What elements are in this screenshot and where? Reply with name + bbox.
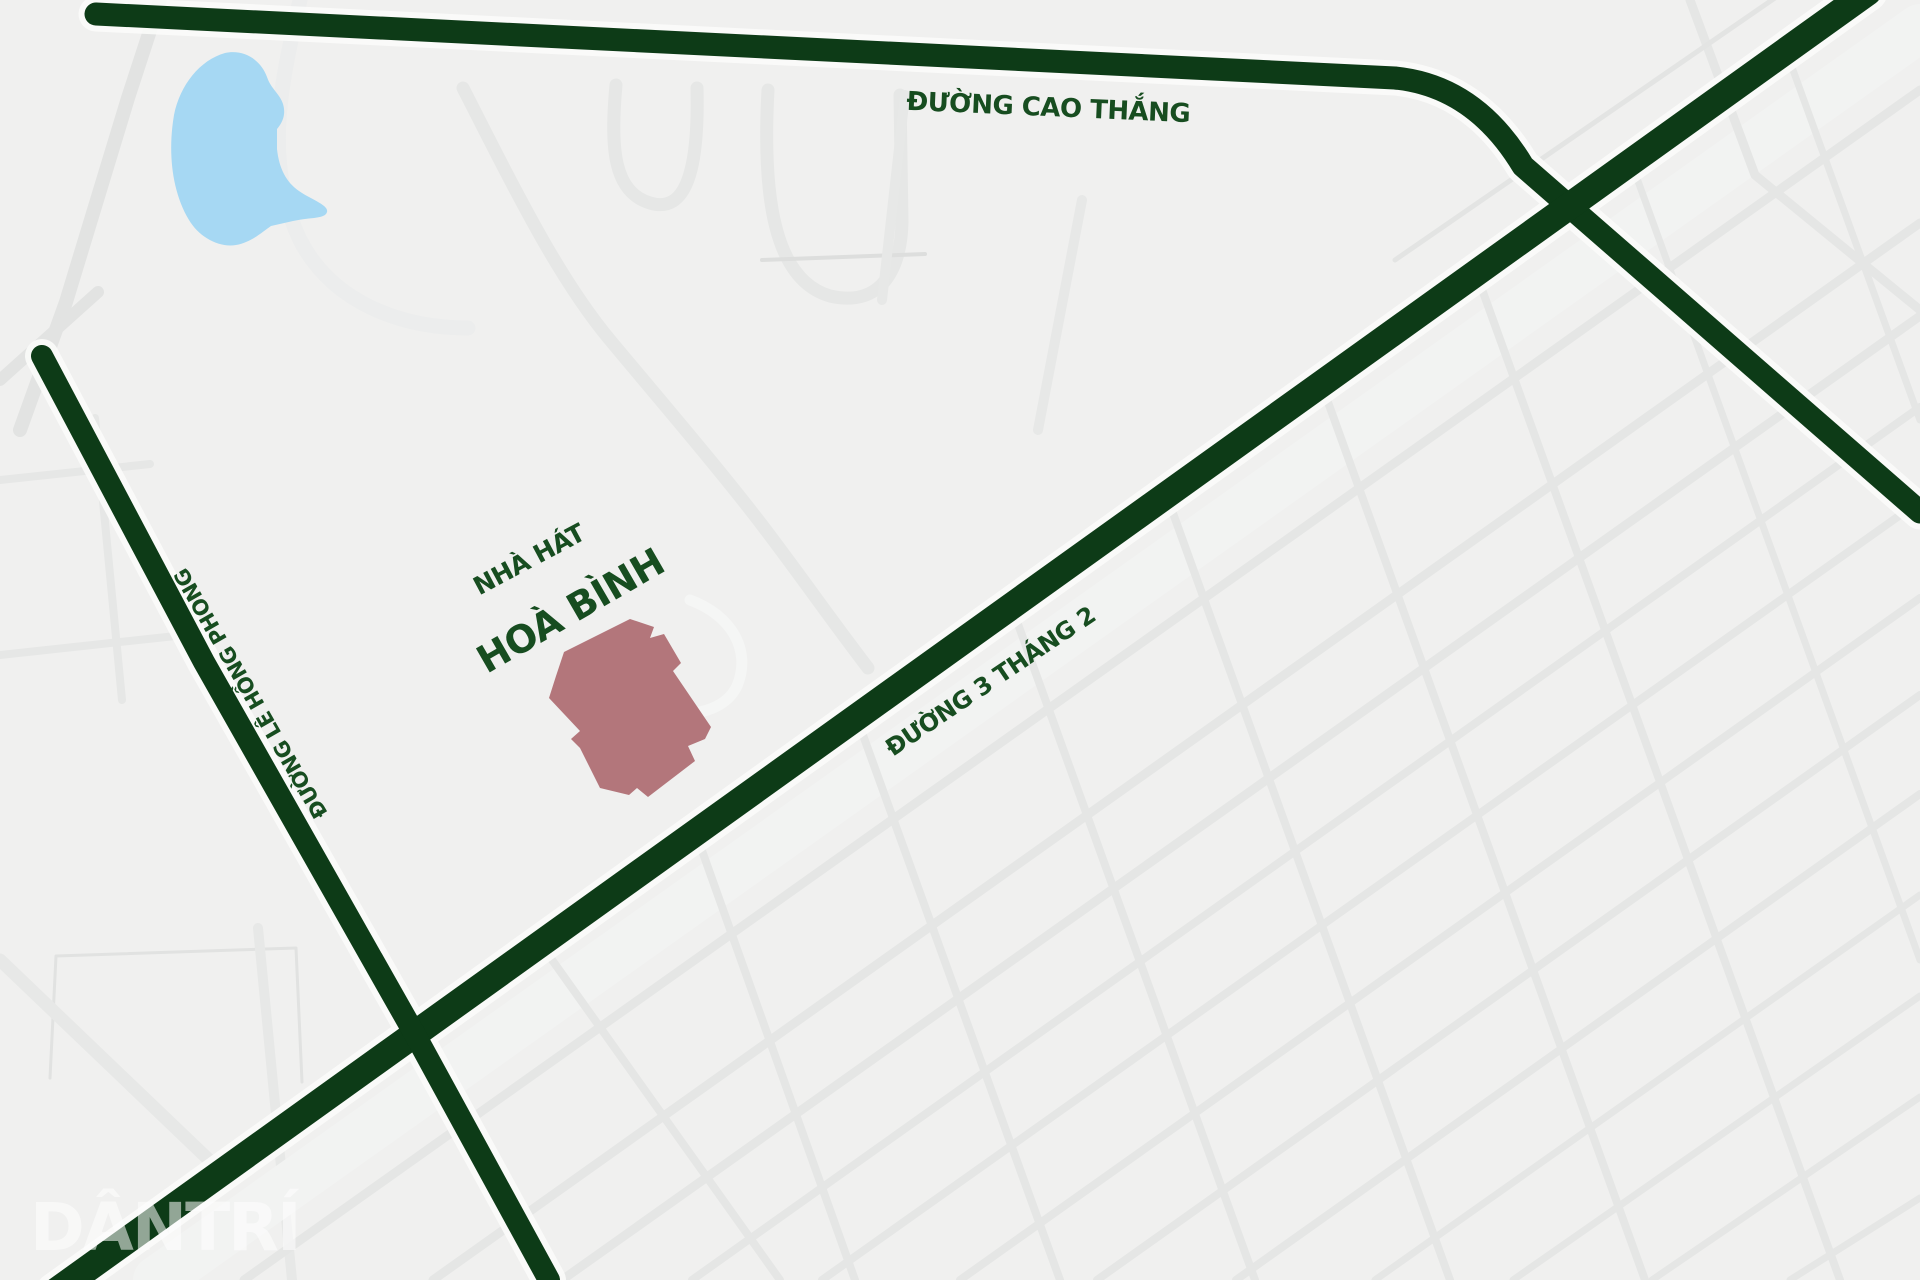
map-canvas: ĐƯỜNG CAO THẮNGĐƯỜNG LÊ HỒNG PHONGĐƯỜNG … <box>0 0 1920 1280</box>
minor-street <box>1375 895 1920 1280</box>
minor-street <box>855 713 1060 1280</box>
minor-street <box>960 598 1920 1280</box>
water-layer <box>171 52 327 245</box>
building-layer <box>549 619 711 797</box>
minor-street <box>0 960 230 1180</box>
minor-street <box>278 0 468 328</box>
label-duong-cao-thang: ĐƯỜNG CAO THẮNG <box>906 81 1191 129</box>
minor-street <box>1038 200 1082 430</box>
minor-street <box>614 85 697 205</box>
street-map: ĐƯỜNG CAO THẮNGĐƯỜNG LÊ HỒNG PHONGĐƯỜNG … <box>0 0 1920 1280</box>
minor-street <box>692 407 1920 1280</box>
minor-street <box>0 464 150 480</box>
label-duong-le-hong-phong: ĐƯỜNG LÊ HỒNG PHONG <box>166 564 332 824</box>
minor-street <box>545 950 780 1280</box>
hoa-binh-theater-building <box>549 619 711 797</box>
minor-street <box>0 635 185 655</box>
minor-street <box>1165 491 1450 1280</box>
watermark-layer: DÂNTRÍ <box>30 1188 300 1266</box>
dantri-logo: DÂNTRÍ <box>30 1188 300 1266</box>
minor-street <box>1790 1198 1920 1280</box>
pond <box>171 52 327 245</box>
